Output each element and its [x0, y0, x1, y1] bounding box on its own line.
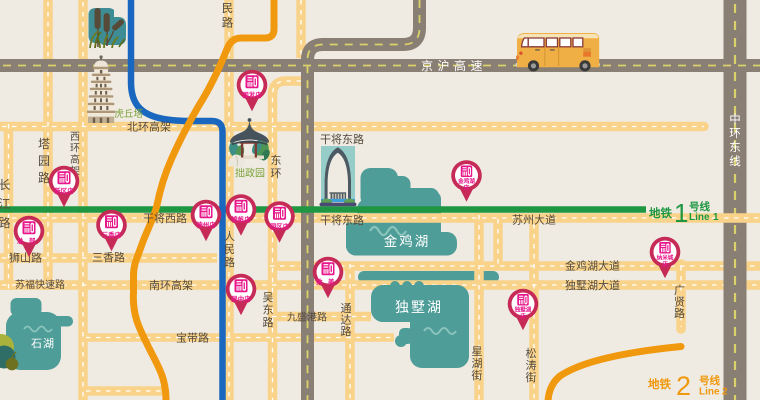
svg-text:干将西路: 干将西路 [143, 212, 187, 225]
svg-text:金鸡湖: 金鸡湖 [457, 177, 475, 185]
svg-text:广贤路: 广贤路 [674, 284, 685, 320]
svg-text:宝带路: 宝带路 [176, 331, 209, 345]
svg-text:新区店: 新区店 [54, 186, 74, 195]
svg-text:园区店: 园区店 [270, 221, 290, 230]
svg-text:总部: 总部 [17, 236, 41, 245]
svg-text:三香路: 三香路 [92, 251, 125, 264]
svg-text:号线: 号线 [699, 374, 720, 387]
svg-text:吴东路: 吴东路 [263, 291, 274, 329]
svg-text:店: 店 [463, 183, 470, 191]
svg-text:九盛港路: 九盛港路 [287, 311, 327, 324]
svg-text:致美: 致美 [316, 277, 340, 286]
svg-text:苏州大道: 苏州大道 [512, 213, 556, 227]
svg-text:2: 2 [676, 371, 691, 400]
svg-text:松涛街: 松涛街 [526, 346, 537, 384]
svg-text:Line: Line [689, 212, 710, 223]
svg-text:三香店: 三香店 [102, 230, 122, 239]
svg-text:神州店: 神州店 [196, 220, 216, 229]
svg-text:独墅湖大道: 独墅湖大道 [565, 278, 620, 292]
svg-text:苏福快速路: 苏福快速路 [15, 278, 65, 291]
svg-text:1: 1 [674, 198, 688, 228]
svg-text:拙政园: 拙政园 [235, 167, 265, 180]
svg-text:1: 1 [713, 212, 719, 223]
svg-text:京沪高速: 京沪高速 [421, 58, 487, 73]
svg-text:通达路: 通达路 [341, 302, 352, 338]
svg-text:人民路: 人民路 [224, 230, 235, 269]
svg-text:塔园路: 塔园路 [38, 137, 50, 185]
svg-text:国发店: 国发店 [242, 90, 262, 99]
svg-text:独墅湖: 独墅湖 [514, 306, 532, 314]
svg-text:2: 2 [722, 387, 728, 398]
svg-text:纳米城: 纳米城 [657, 254, 674, 262]
svg-text:干将东路: 干将东路 [320, 214, 364, 227]
svg-text:地铁: 地铁 [648, 377, 671, 391]
svg-text:独墅湖: 独墅湖 [395, 299, 443, 315]
svg-text:长江路: 长江路 [0, 178, 11, 230]
svg-text:吴中店: 吴中店 [231, 294, 251, 303]
svg-text:干将东路: 干将东路 [320, 133, 364, 146]
svg-text:北环高架: 北环高架 [127, 120, 171, 134]
svg-text:地铁: 地铁 [649, 206, 672, 220]
svg-text:南环高架: 南环高架 [149, 278, 193, 292]
svg-text:金鸡湖大道: 金鸡湖大道 [565, 259, 620, 273]
svg-text:店: 店 [661, 260, 668, 268]
svg-text:店: 店 [519, 312, 526, 320]
svg-text:石湖: 石湖 [31, 337, 55, 350]
svg-text:金鸡湖: 金鸡湖 [384, 233, 431, 249]
svg-text:虎丘塔: 虎丘塔 [115, 108, 144, 120]
svg-text:锦帆店: 锦帆店 [231, 214, 251, 223]
svg-text:星湖街: 星湖街 [472, 345, 483, 382]
svg-text:狮山路: 狮山路 [9, 252, 42, 265]
svg-text:Line: Line [699, 387, 720, 398]
